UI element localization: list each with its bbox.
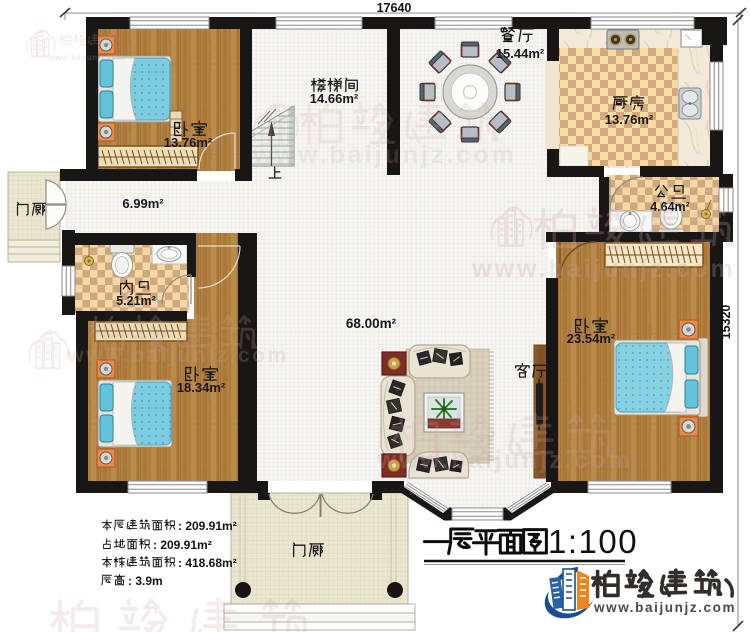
svg-text:18.34m²: 18.34m² [177,380,226,395]
svg-text:: 3.9m: : 3.9m [128,574,163,588]
svg-text:: 209.91m²: : 209.91m² [178,519,237,533]
svg-text:: 209.91m²: : 209.91m² [153,538,212,552]
svg-text:www.baijunjz.com: www.baijunjz.com [66,344,288,367]
svg-text:www.baijunjz.com: www.baijunjz.com [471,255,736,283]
svg-text:14.66m²: 14.66m² [310,91,359,106]
svg-text:1:100: 1:100 [548,523,638,560]
svg-text:: 418.68m²: : 418.68m² [178,556,237,570]
svg-text:www.baijunjz.com: www.baijunjz.com [47,53,125,62]
svg-text:5.21m²: 5.21m² [116,294,156,308]
svg-text:www.baijunjz.com: www.baijunjz.com [376,447,632,474]
svg-text:17640: 17640 [377,1,412,15]
svg-text:15320: 15320 [719,305,733,340]
svg-text:23.54m²: 23.54m² [567,331,616,346]
svg-text:68.00m²: 68.00m² [346,316,397,331]
svg-text:6.99m²: 6.99m² [122,196,164,211]
svg-text:www.baijunjz.com: www.baijunjz.com [593,600,736,615]
svg-text:13.76m²: 13.76m² [605,112,654,127]
svg-text:www.baijunjz.com: www.baijunjz.com [252,141,517,169]
svg-text:13.76m²: 13.76m² [164,135,213,150]
svg-text:15.44m²: 15.44m² [496,46,545,61]
